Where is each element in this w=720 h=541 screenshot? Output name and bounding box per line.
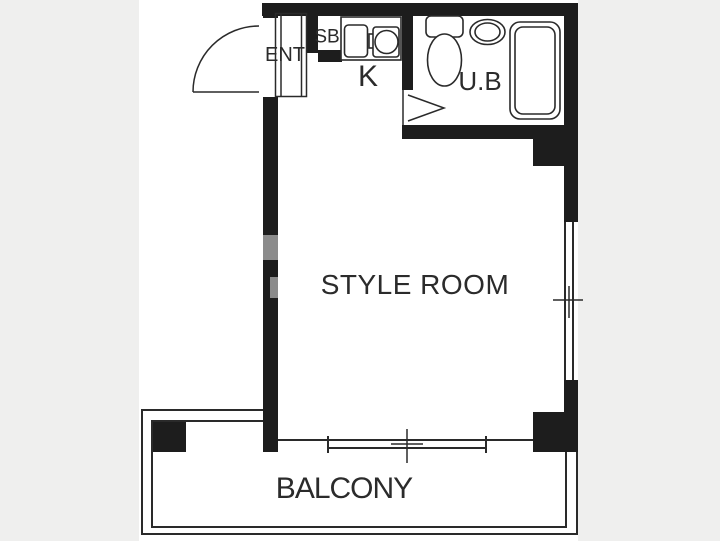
wall-gray-patch-2 (270, 277, 278, 298)
kitchen-counter (341, 17, 401, 60)
shoe-box-label: SB (314, 28, 339, 47)
wall-left-column (263, 97, 278, 452)
wall-shoebox-bottom (318, 50, 342, 62)
wash-basin-inner-icon (475, 23, 500, 41)
wall-right-step-block (533, 139, 578, 166)
toilet-bowl-icon (428, 34, 462, 86)
main-room-label: STYLE ROOM (321, 271, 510, 299)
wall-top (262, 3, 578, 16)
wall-balcony-stub (152, 421, 186, 452)
kitchen-burner-icon (375, 31, 398, 54)
wall-right-upper (564, 16, 578, 125)
wall-right-mid (564, 166, 578, 222)
kitchen-sink-icon (345, 25, 368, 57)
wall-right-lower (564, 380, 578, 412)
bathtub-inner-icon (515, 27, 555, 114)
entrance-label: ENT (265, 45, 305, 65)
unit-bath-label: U.B (458, 68, 501, 94)
balcony-label: BALCONY (276, 474, 412, 504)
kitchen-label: K (358, 62, 378, 92)
wall-bath-bottom (402, 125, 578, 139)
wall-kitchen-bath-divider (402, 16, 413, 90)
wall-gray-patch-1 (263, 235, 278, 260)
wall-bottom-right-block (533, 412, 578, 452)
floor-plan-image: ENT SB K U.B STYLE ROOM BALCONY (0, 0, 720, 541)
